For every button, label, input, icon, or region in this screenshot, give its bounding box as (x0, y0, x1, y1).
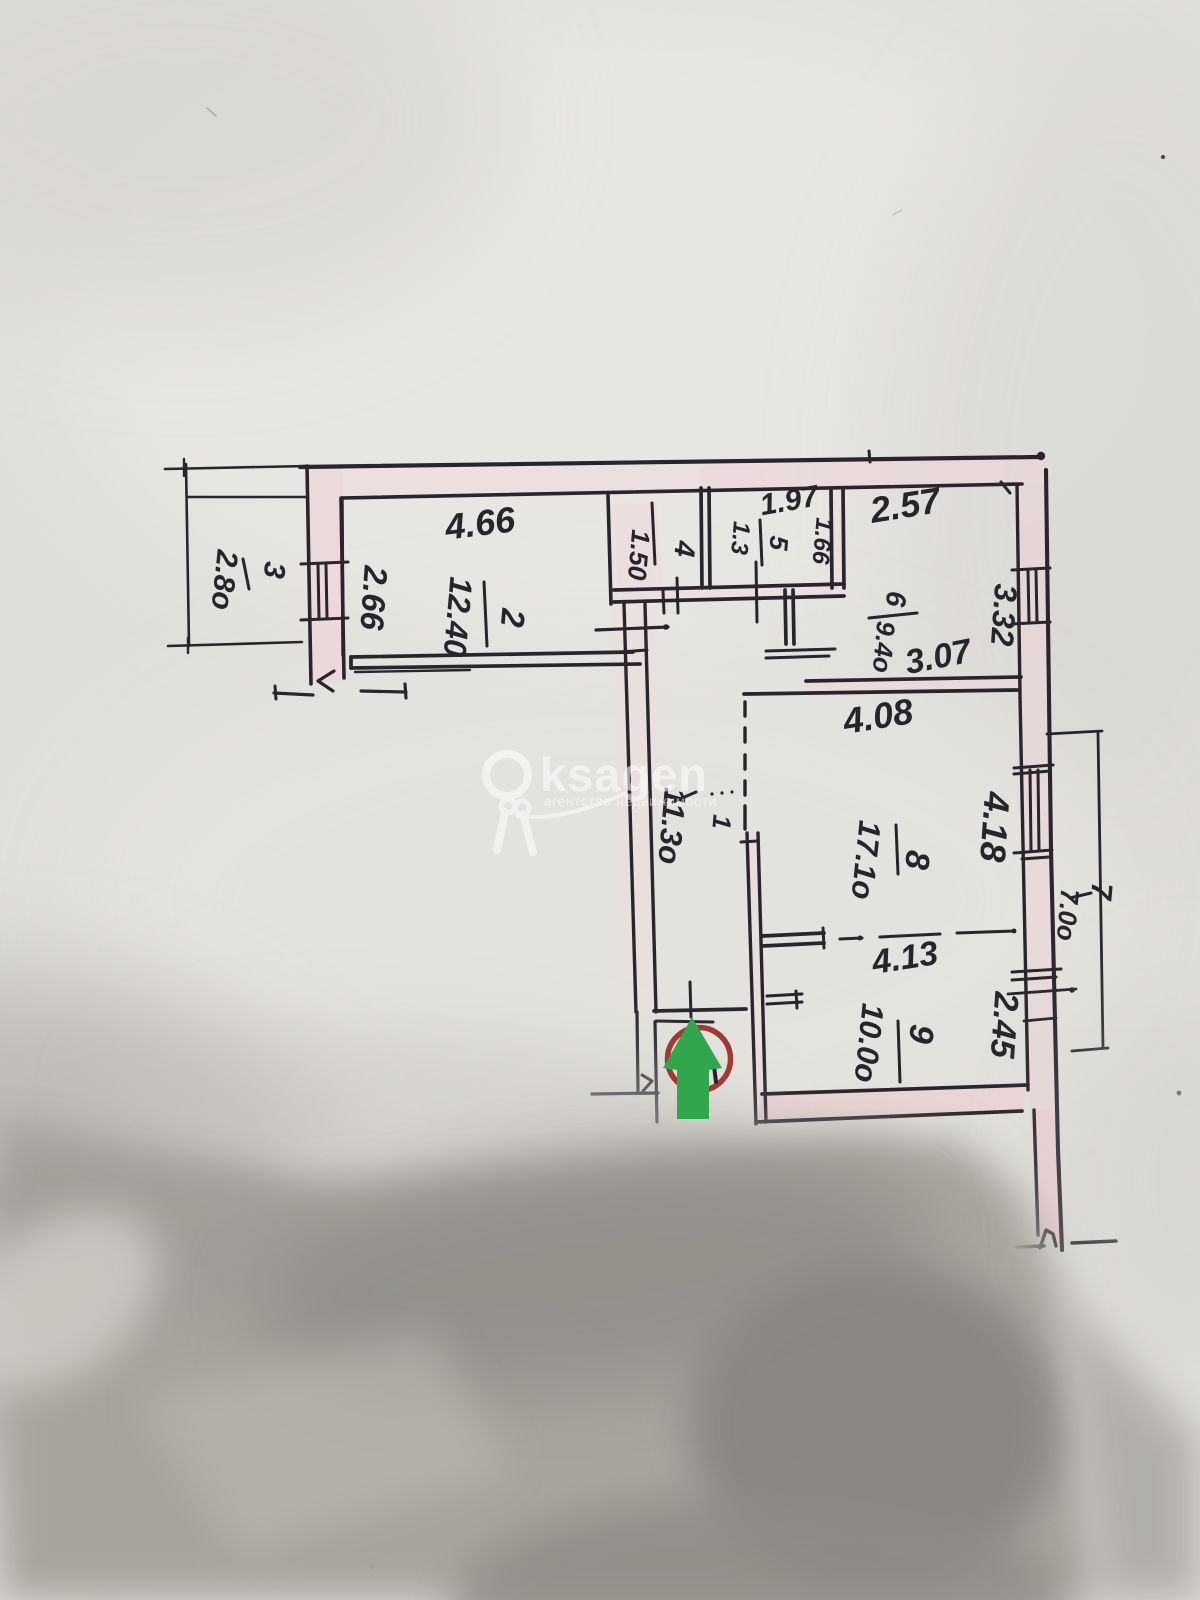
svg-text:1.3: 1.3 (725, 520, 755, 556)
svg-text:12.40: 12.40 (437, 576, 480, 659)
svg-text:9: 9 (901, 1023, 941, 1046)
svg-text:2.45: 2.45 (983, 990, 1026, 1061)
svg-text:6: 6 (880, 590, 912, 609)
svg-text:4.66: 4.66 (442, 498, 519, 547)
svg-text:2: 2 (494, 606, 533, 629)
svg-text:1.66: 1.66 (806, 517, 837, 567)
svg-text:8: 8 (897, 849, 937, 872)
svg-text:1: 1 (706, 813, 737, 830)
svg-text:3.32: 3.32 (984, 583, 1024, 648)
svg-text:2.8o: 2.8o (204, 547, 243, 611)
svg-text:9.4o: 9.4o (867, 620, 901, 675)
svg-text:4.18: 4.18 (972, 790, 1018, 864)
svg-text:2.66: 2.66 (353, 564, 395, 632)
svg-text:4: 4 (667, 539, 700, 559)
svg-text:1.50: 1.50 (622, 528, 656, 582)
svg-text:агентство недвижимости: агентство недвижимости (544, 794, 717, 809)
